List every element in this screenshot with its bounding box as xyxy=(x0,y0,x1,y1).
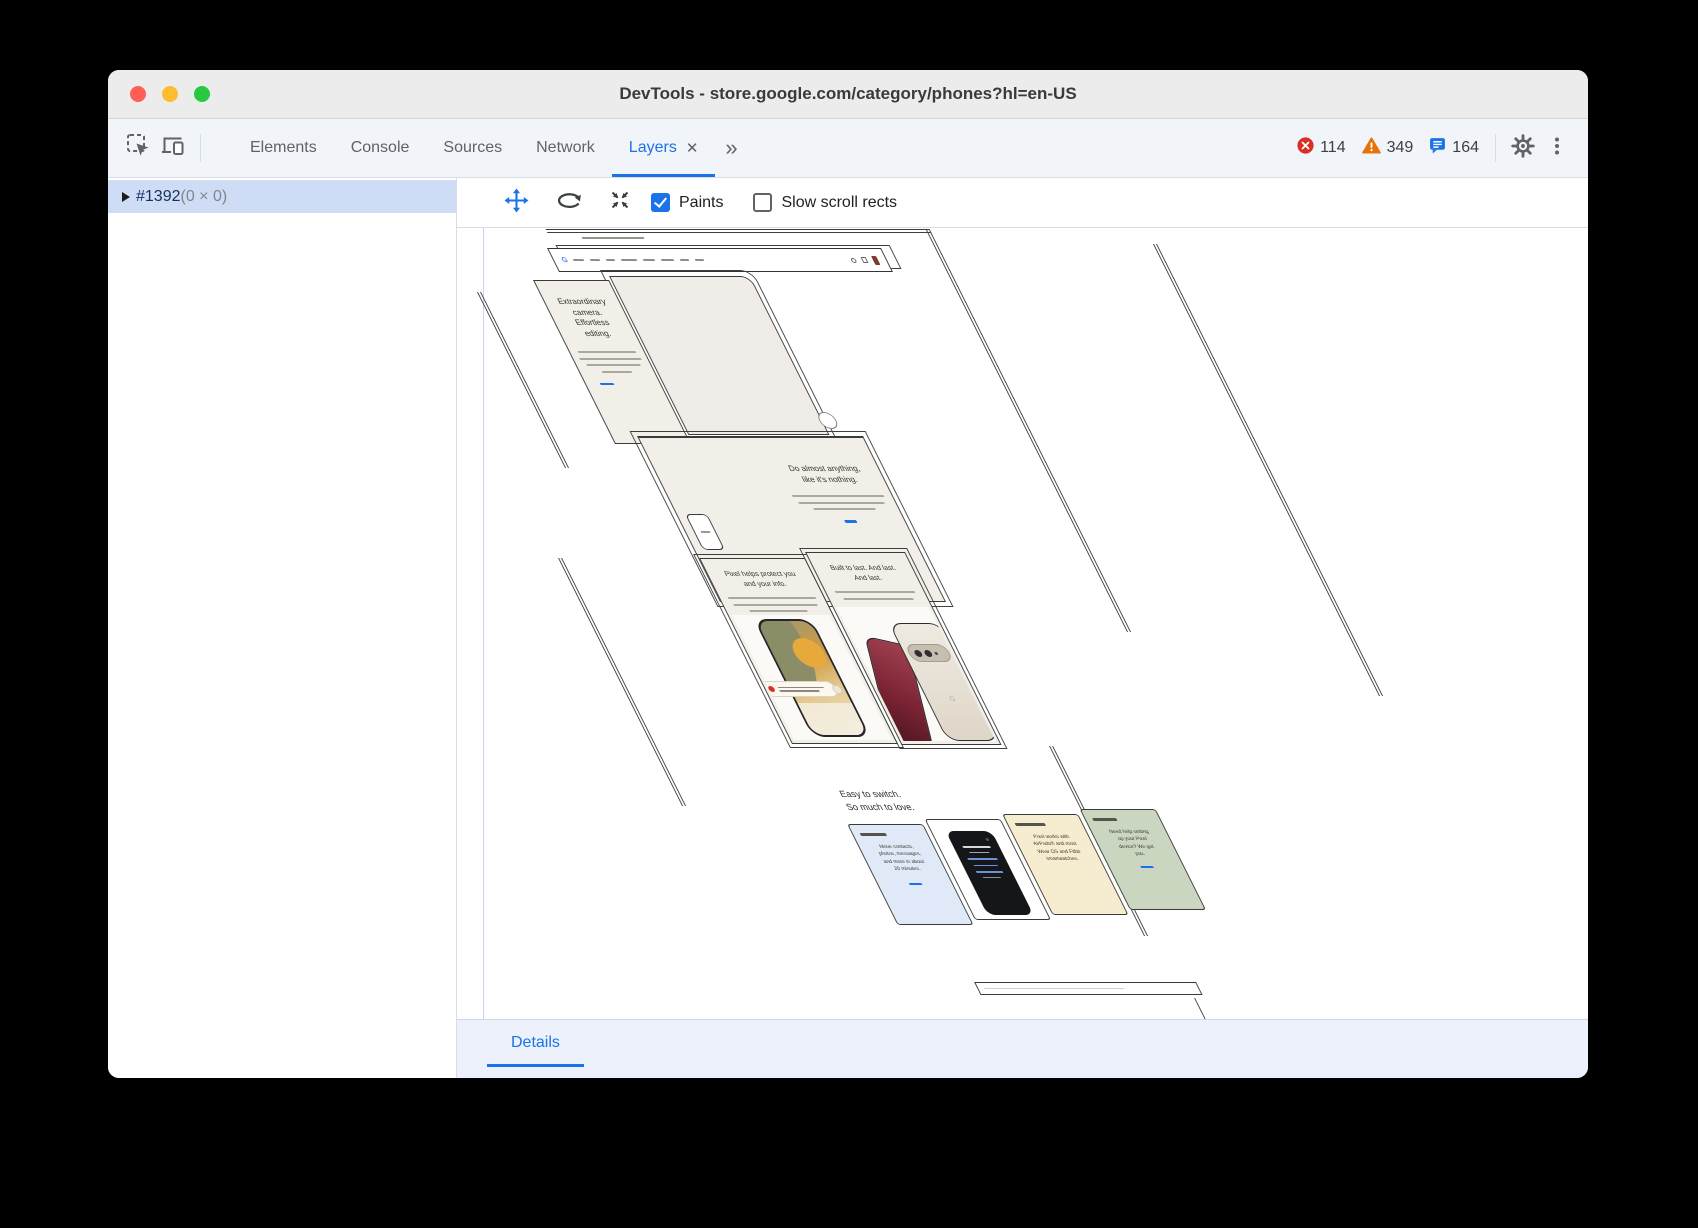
text-line xyxy=(728,597,817,599)
hero-title-line: Effortless xyxy=(553,318,632,329)
inspect-element-button[interactable] xyxy=(122,131,156,165)
disclosure-triangle-icon[interactable] xyxy=(122,192,130,202)
hero-title-line: camera. xyxy=(548,308,627,319)
close-tab-icon[interactable]: ✕ xyxy=(686,139,699,157)
text-line xyxy=(733,604,818,606)
devtools-tab-bar: Elements Console Sources Network Layers … xyxy=(108,119,1588,178)
toolbar-divider xyxy=(1495,134,1496,162)
card-title-line: Pixel helps protect you xyxy=(706,570,815,580)
tab-console[interactable]: Console xyxy=(334,119,427,177)
reset-view-button[interactable] xyxy=(607,190,633,216)
nav-item-line xyxy=(643,259,656,261)
announcement-bar-line xyxy=(582,237,645,239)
text-line xyxy=(601,371,632,373)
learn-more-link xyxy=(599,383,614,386)
nav-item-line xyxy=(590,259,601,261)
layer-size: (0 × 0) xyxy=(181,188,228,206)
text-line xyxy=(578,351,637,353)
layers-toolbar: Paints Slow scroll rects xyxy=(457,178,1588,228)
phone-g-logo: G xyxy=(926,696,980,703)
layer-outline xyxy=(546,229,932,233)
minimize-window-button[interactable] xyxy=(162,86,178,102)
text-line xyxy=(586,364,641,366)
hero-title-line: editing. xyxy=(558,329,637,340)
error-count[interactable]: 114 xyxy=(1297,137,1346,159)
cart-icon xyxy=(861,257,869,263)
phone-thumbnail xyxy=(685,514,725,550)
issues-count-value: 164 xyxy=(1452,139,1479,157)
switch-heading-line: Easy to switch. xyxy=(837,788,954,801)
settings-button[interactable] xyxy=(1506,131,1540,165)
gear-icon xyxy=(1510,133,1536,164)
warning-icon xyxy=(1362,137,1381,159)
message-bubble-icon xyxy=(1429,137,1446,159)
switch-heading-line: So much to love. xyxy=(844,801,961,814)
more-options-button[interactable] xyxy=(1540,131,1574,165)
card-header-line xyxy=(1015,823,1046,826)
inspect-cursor-icon xyxy=(126,133,152,164)
tab-network[interactable]: Network xyxy=(519,119,612,177)
slow-scroll-option: Slow scroll rects xyxy=(753,193,897,212)
warning-count-value: 349 xyxy=(1387,139,1414,157)
text-line xyxy=(798,502,885,504)
nav-item-line xyxy=(680,259,690,261)
devtools-window: DevTools - store.google.com/category/pho… xyxy=(108,70,1588,1078)
learn-more-link xyxy=(908,883,922,886)
alert-dot-icon xyxy=(767,686,776,692)
tab-layers[interactable]: Layers ✕ xyxy=(612,119,716,177)
toolbar-divider xyxy=(200,134,201,162)
canvas-guide-line xyxy=(483,228,484,1019)
warning-count[interactable]: 349 xyxy=(1362,137,1414,159)
tab-sources[interactable]: Sources xyxy=(426,119,519,177)
layer-outline xyxy=(1194,998,1210,1019)
title-bar: DevTools - store.google.com/category/pho… xyxy=(108,70,1588,119)
details-tab[interactable]: Details xyxy=(487,1020,584,1067)
chevron-double-icon: » xyxy=(725,135,738,161)
camera-bar xyxy=(904,644,954,662)
tab-elements[interactable]: Elements xyxy=(233,119,334,177)
layer-tree-item[interactable]: #1392 (0 × 0) xyxy=(108,180,456,213)
paints-checkbox[interactable] xyxy=(651,193,670,212)
nav-item-line xyxy=(621,259,638,261)
scrollbar-strip-layer xyxy=(974,982,1203,995)
layer-outline xyxy=(926,230,1131,632)
search-icon xyxy=(850,258,858,263)
learn-more-link xyxy=(844,520,857,523)
paints-label: Paints xyxy=(679,194,723,212)
error-count-value: 114 xyxy=(1320,139,1346,157)
tab-layers-label: Layers xyxy=(629,139,677,157)
card-header-line xyxy=(1092,818,1117,821)
nav-item-line xyxy=(695,259,705,261)
error-icon xyxy=(1297,137,1314,159)
card-title-line: Built to last. And last. xyxy=(812,564,915,574)
layer-tree-sidebar: #1392 (0 × 0) xyxy=(108,178,457,1078)
text-line xyxy=(835,591,916,593)
section-title-line: like it's nothing. xyxy=(775,475,884,486)
layers-3d-canvas[interactable]: G xyxy=(457,228,1588,1019)
avatar xyxy=(871,256,881,265)
nav-item-line xyxy=(661,259,675,261)
text-line xyxy=(749,610,808,612)
device-toolbar-button[interactable] xyxy=(156,131,190,165)
paints-option: Paints xyxy=(651,193,723,212)
switch-heading: Easy to switch. So much to love. xyxy=(837,788,960,814)
text-line xyxy=(843,598,914,600)
slow-scroll-label: Slow scroll rects xyxy=(781,194,897,212)
card-header-line xyxy=(860,833,887,836)
close-window-button[interactable] xyxy=(130,86,146,102)
notification-pill xyxy=(759,681,841,697)
pan-arrows-icon xyxy=(504,188,529,218)
layer-id: #1392 xyxy=(136,188,181,206)
text-line xyxy=(792,495,885,497)
device-toolbar-icon xyxy=(160,133,186,164)
layer-outline xyxy=(1153,244,1383,696)
google-logo: G xyxy=(560,257,569,264)
card-title-line: and your info. xyxy=(711,580,820,590)
text-line xyxy=(813,508,876,510)
explore-link xyxy=(1139,866,1153,869)
window-title: DevTools - store.google.com/category/pho… xyxy=(619,84,1076,104)
collapse-arrows-icon xyxy=(608,188,632,217)
rotate-mode-button[interactable] xyxy=(555,190,581,216)
card-title-line: And last. xyxy=(817,574,920,584)
issues-count[interactable]: 164 xyxy=(1429,137,1479,159)
rotate-3d-icon xyxy=(555,187,582,219)
section-title-line: Do almost anything, xyxy=(770,464,879,475)
details-pane: Details xyxy=(457,1019,1588,1078)
kebab-menu-icon xyxy=(1546,135,1568,162)
nav-item-line xyxy=(573,259,585,261)
more-tabs-button[interactable]: » xyxy=(715,119,748,177)
layer-outline xyxy=(558,558,686,806)
hero-title-line: Extraordinary xyxy=(543,297,622,308)
text-line xyxy=(579,358,642,360)
nav-item-line xyxy=(606,259,616,261)
zoom-window-button[interactable] xyxy=(194,86,210,102)
pan-mode-button[interactable] xyxy=(503,190,529,216)
panel-tabs: Elements Console Sources Network Layers … xyxy=(233,119,749,177)
slow-scroll-checkbox[interactable] xyxy=(753,193,772,212)
store-navbar-layer[interactable]: G xyxy=(547,248,893,272)
